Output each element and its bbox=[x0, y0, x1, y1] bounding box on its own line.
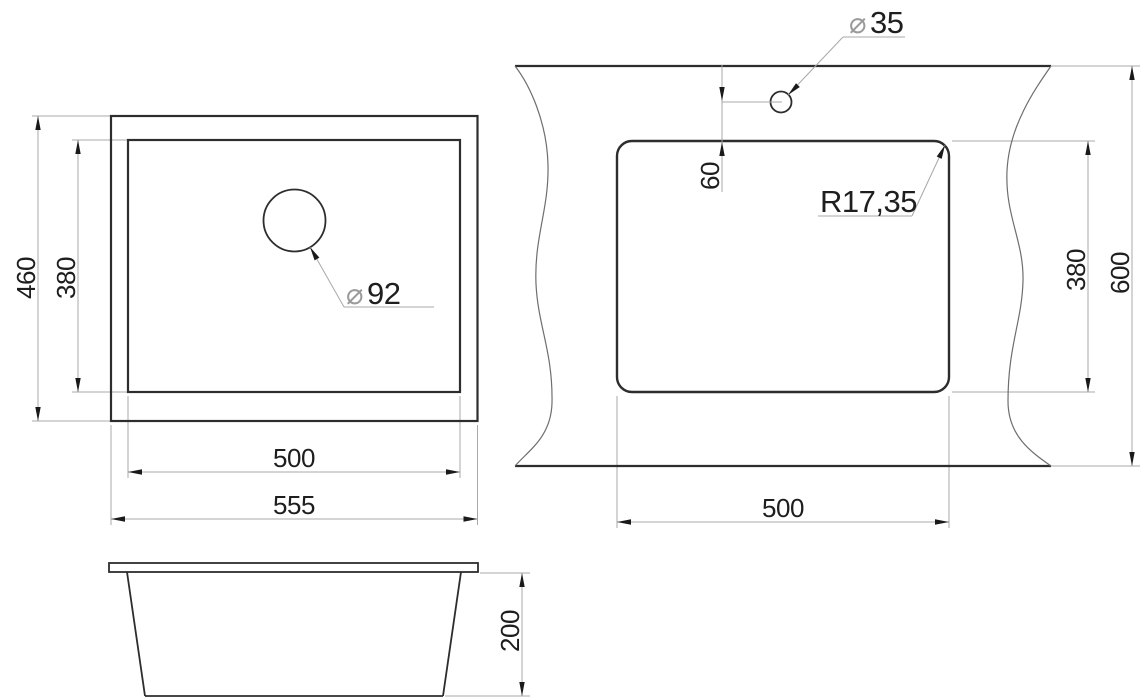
arrowhead bbox=[617, 519, 631, 524]
arrowhead bbox=[719, 87, 724, 101]
dim-label-bowl-depth: 380 bbox=[51, 257, 81, 299]
dim-label-outer-depth: 460 bbox=[11, 257, 41, 299]
callout-corner-radius: R17,35 bbox=[818, 145, 945, 219]
bowl-right-wall bbox=[443, 572, 461, 696]
drain-hole bbox=[264, 190, 326, 252]
sink-technical-drawing: 460 380 500 555 ⌀92 bbox=[0, 0, 1140, 700]
arrowhead bbox=[519, 573, 524, 587]
dim-label-cutout-width: 500 bbox=[762, 493, 804, 523]
break-line-left bbox=[515, 66, 552, 466]
dim-outer-depth: 460 bbox=[11, 116, 41, 421]
side-view: 200 bbox=[109, 563, 530, 696]
faucet-diameter-value: 35 bbox=[870, 5, 903, 40]
sink-outer-rim bbox=[111, 116, 478, 421]
bowl-left-wall bbox=[127, 572, 145, 696]
arrowhead bbox=[446, 469, 460, 474]
diameter-symbol: ⌀ bbox=[346, 277, 363, 311]
dim-label-counter-depth: 600 bbox=[1105, 252, 1135, 294]
arrowhead bbox=[35, 407, 40, 421]
top-view: 460 380 500 555 ⌀92 bbox=[11, 116, 478, 525]
callout-faucet-diameter: ⌀35 bbox=[788, 5, 905, 95]
dim-label-faucet-offset: 60 bbox=[695, 162, 725, 190]
faucet-diameter-label: ⌀35 bbox=[849, 5, 903, 40]
dim-faucet-offset: 60 bbox=[695, 65, 782, 192]
drain-diameter-label: ⌀92 bbox=[346, 276, 400, 311]
dim-outer-width: 555 bbox=[111, 490, 478, 522]
arrowhead bbox=[1085, 141, 1090, 155]
dim-label-cutout-height: 380 bbox=[1061, 249, 1091, 291]
cutout-outline bbox=[617, 141, 949, 392]
dim-label-outer-width: 555 bbox=[273, 490, 315, 520]
arrowhead bbox=[35, 116, 40, 130]
arrowhead bbox=[1085, 378, 1090, 392]
dim-label-bowl-width: 500 bbox=[273, 443, 315, 473]
sink-flange-profile bbox=[109, 563, 478, 572]
dim-counter-depth: 600 bbox=[1105, 66, 1135, 466]
arrowhead bbox=[719, 142, 724, 156]
break-line-right bbox=[1007, 66, 1051, 466]
dim-bowl-depth: 380 bbox=[51, 140, 81, 392]
arrowhead bbox=[1129, 452, 1134, 466]
drain-diameter-value: 92 bbox=[367, 276, 400, 311]
dim-cutout-width: 500 bbox=[617, 493, 949, 525]
arrowhead bbox=[75, 378, 80, 392]
arrowhead bbox=[935, 519, 949, 524]
arrowhead bbox=[464, 516, 478, 521]
callout-drain-diameter: ⌀92 bbox=[310, 247, 434, 311]
arrowhead bbox=[519, 682, 524, 696]
cutout-view: 60 ⌀35 R17,35 380 600 bbox=[515, 5, 1140, 528]
arrowhead bbox=[75, 140, 80, 154]
diameter-symbol: ⌀ bbox=[849, 6, 866, 40]
arrowhead bbox=[111, 516, 125, 521]
arrowhead bbox=[128, 469, 142, 474]
dim-label-sink-height: 200 bbox=[495, 610, 525, 652]
arrowhead bbox=[937, 145, 945, 159]
dim-sink-height: 200 bbox=[495, 573, 525, 696]
corner-radius-label: R17,35 bbox=[820, 184, 917, 219]
dim-bowl-width: 500 bbox=[128, 443, 460, 475]
sink-bowl-edge bbox=[128, 140, 460, 392]
arrowhead bbox=[1129, 66, 1134, 80]
arrowhead bbox=[310, 247, 319, 260]
dim-cutout-height: 380 bbox=[1061, 141, 1091, 392]
